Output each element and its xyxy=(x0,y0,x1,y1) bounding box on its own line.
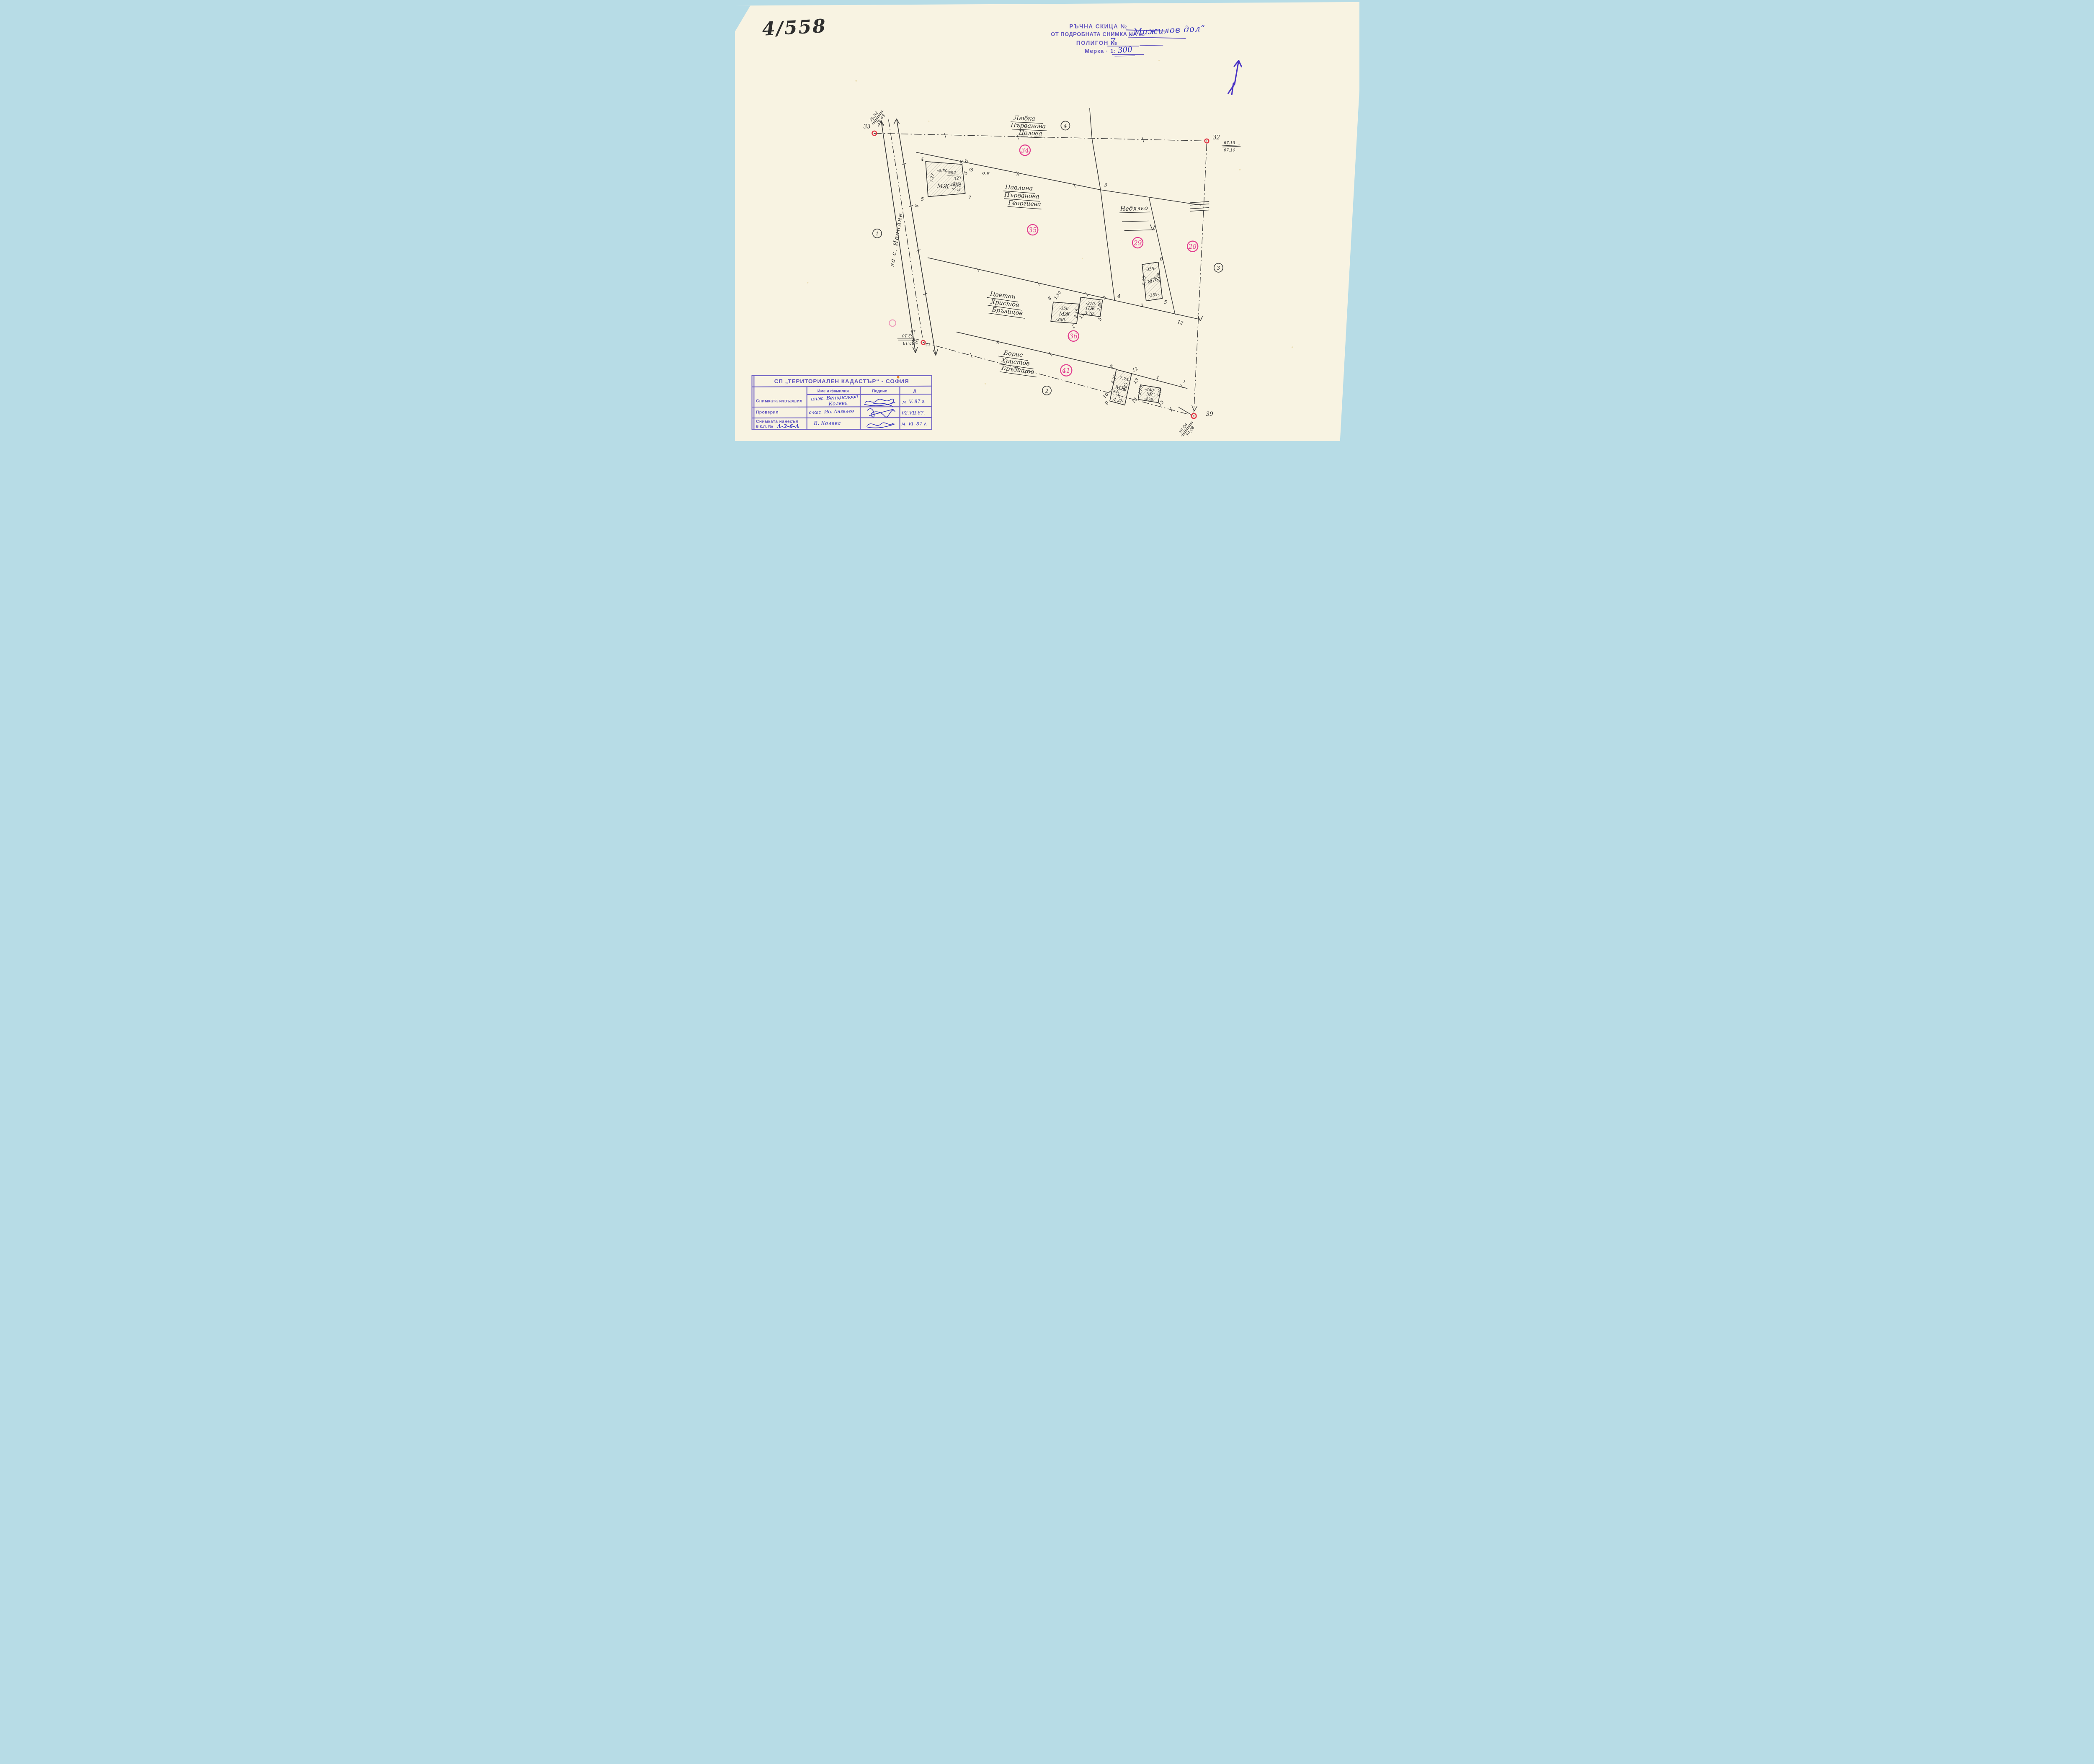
svg-text:МЖ: МЖ xyxy=(936,183,950,190)
stamp-row1-label: Снимката извършил xyxy=(756,399,802,403)
stamp-row2-label: Проверил xyxy=(756,410,779,415)
svg-text:Любка: Любка xyxy=(1013,115,1035,122)
svg-text:34: 34 xyxy=(1021,147,1029,155)
stamp-col-date: Д xyxy=(913,389,916,393)
axis-point-ok-label: о.к xyxy=(982,170,990,176)
svg-text:7: 7 xyxy=(968,194,971,200)
label-8: 8 xyxy=(913,204,919,208)
road-number-3: 3 xyxy=(1217,265,1220,271)
svg-text:29: 29 xyxy=(1133,239,1142,247)
polygon-number-handwritten: 7 xyxy=(1109,36,1115,47)
svg-text:36: 36 xyxy=(1069,333,1078,340)
point-32-elev-a: 67,13 xyxy=(1223,141,1235,145)
junction-3-label: 3 xyxy=(1104,182,1107,188)
road-number-1: 1 xyxy=(875,230,879,237)
scanned-cadastral-sketch: 4/558 РЪЧНА СКИЦА № ОТ ПОДРОБНАТА СНИМКА… xyxy=(735,0,1359,441)
svg-text:-350-: -350- xyxy=(1055,317,1067,323)
point-33-label: 33 xyxy=(863,124,870,130)
label-14: 14 xyxy=(910,329,915,334)
point-32-elev-b: 67,10 xyxy=(1223,148,1235,153)
stamp-col-name: Име и фамилия xyxy=(817,389,848,393)
stamp-col-sign: Подпис xyxy=(872,389,887,393)
svg-text:692: 692 xyxy=(948,171,956,175)
stamp-row1-name2: Колева xyxy=(828,400,848,407)
stamp-row3-date: м. VI. 87 г. xyxy=(901,421,927,426)
point-32-label: 32 xyxy=(1212,134,1220,141)
sketch-sheet: 4/558 РЪЧНА СКИЦА № ОТ ПОДРОБНАТА СНИМКА… xyxy=(735,0,1359,441)
sheet-number: 4/558 xyxy=(761,15,827,40)
svg-text:28: 28 xyxy=(1188,243,1197,250)
scale-handwritten: 300 xyxy=(1117,45,1133,55)
svg-text:ПЖ: ПЖ xyxy=(1085,305,1096,312)
road-number-4: 4 xyxy=(1063,123,1067,129)
svg-text:Първанова: Първанова xyxy=(1010,122,1046,130)
stamp-org: СП „ТЕРИТОРИАЛЕН КАДАСТЪР“ - СОФИЯ xyxy=(774,378,909,384)
svg-text:52,13: 52,13 xyxy=(903,340,914,345)
svg-text:5: 5 xyxy=(921,196,923,202)
svg-text:МЖ: МЖ xyxy=(1058,310,1071,317)
stamp-row3-klno: А-2-6-А xyxy=(776,423,799,429)
title-line1: РЪЧНА СКИЦА № xyxy=(1069,23,1127,30)
stamp-row3-name: В. Колева xyxy=(813,420,841,426)
svg-text:Цолова: Цолова xyxy=(1019,129,1042,137)
svg-text:35: 35 xyxy=(1028,226,1037,234)
title-line4: Мерка · 1: xyxy=(1085,48,1116,54)
svg-text:б: б xyxy=(1160,256,1163,262)
junction-4-label: 4 xyxy=(1117,293,1120,299)
svg-text:4: 4 xyxy=(920,156,923,162)
label-15: 15 xyxy=(925,342,930,347)
svg-text:5: 5 xyxy=(1164,299,1167,305)
svg-text:-8,50-: -8,50- xyxy=(937,168,949,174)
stamp-row1-date: м. V. 87 г. xyxy=(902,398,926,405)
point-39-label: 39 xyxy=(1206,411,1213,418)
stamp-row3-label2: в к.л. № xyxy=(756,424,773,429)
road-number-2: 2 xyxy=(1044,387,1048,394)
stamp-row2-date: 02.VII.87. xyxy=(902,410,925,415)
svg-text:41: 41 xyxy=(1062,367,1070,374)
svg-text:Недялко: Недялко xyxy=(1119,205,1148,212)
svg-text:3: 3 xyxy=(1140,302,1143,308)
